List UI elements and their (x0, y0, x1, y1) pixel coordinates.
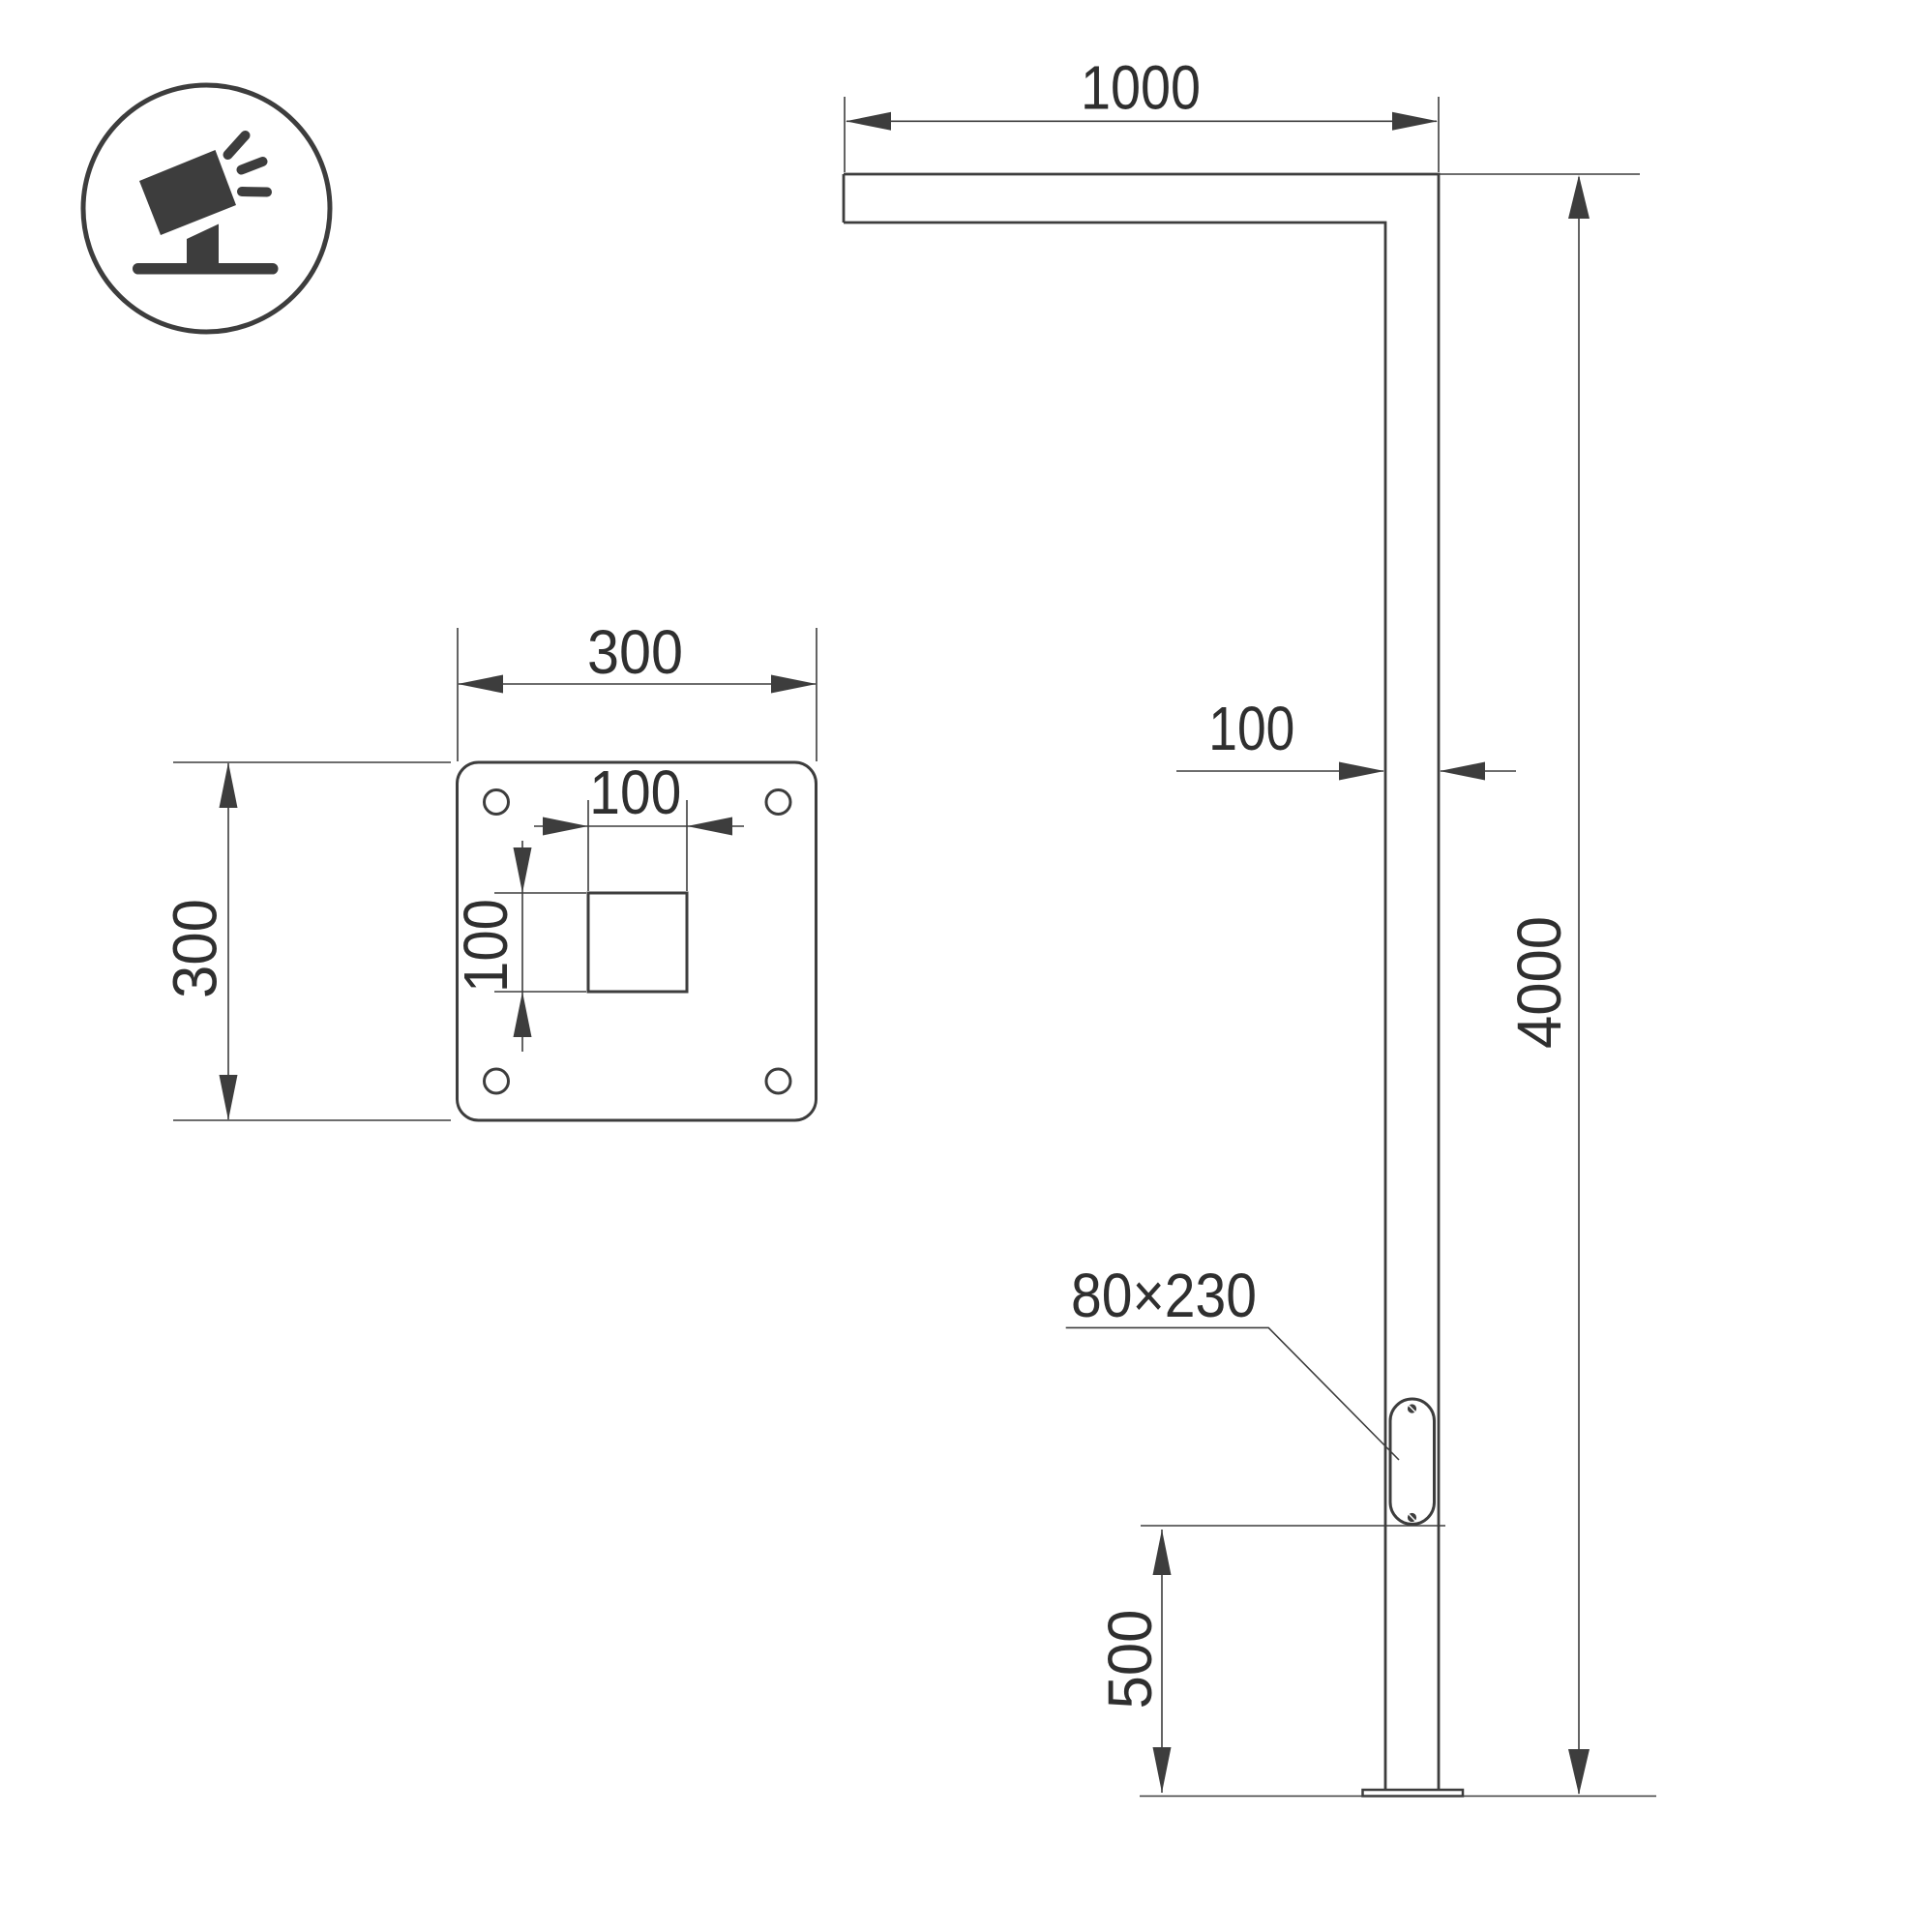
svg-text:100: 100 (589, 758, 681, 827)
svg-text:300: 300 (587, 617, 683, 687)
svg-text:100: 100 (1208, 694, 1294, 763)
svg-text:80×230: 80×230 (1071, 1261, 1257, 1330)
svg-text:4000: 4000 (1504, 916, 1574, 1049)
svg-text:300: 300 (161, 899, 230, 998)
svg-text:1000: 1000 (1081, 53, 1201, 123)
svg-text:500: 500 (1095, 1610, 1165, 1709)
svg-text:100: 100 (451, 899, 520, 993)
